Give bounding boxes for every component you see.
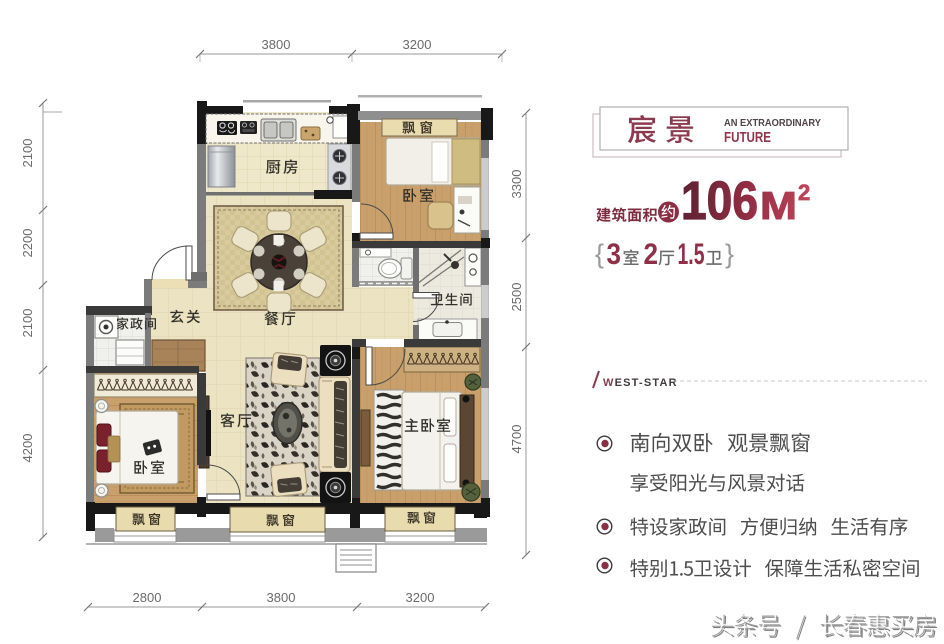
svg-text:AN EXTRAORDINARY: AN EXTRAORDINARY: [724, 117, 821, 129]
svg-text:}: }: [725, 239, 734, 269]
svg-text:3: 3: [607, 238, 622, 271]
svg-text:2100: 2100: [20, 309, 35, 338]
svg-text:M: M: [760, 185, 797, 228]
svg-text:2800: 2800: [133, 590, 162, 605]
svg-text:3200: 3200: [406, 590, 435, 605]
svg-text:106: 106: [681, 171, 758, 231]
svg-text:FUTURE: FUTURE: [724, 130, 771, 146]
svg-text:4200: 4200: [20, 434, 35, 463]
svg-text:3800: 3800: [262, 37, 291, 52]
svg-text:2100: 2100: [20, 139, 35, 168]
svg-text:2: 2: [644, 238, 659, 271]
svg-text:{: {: [595, 239, 604, 269]
svg-text:1.5: 1.5: [678, 238, 705, 271]
svg-text:3800: 3800: [267, 590, 296, 605]
svg-text:2: 2: [798, 180, 810, 205]
svg-text:3300: 3300: [509, 170, 524, 199]
svg-text:2500: 2500: [509, 283, 524, 312]
svg-text:WEST-STAR: WEST-STAR: [603, 377, 678, 389]
svg-text:2200: 2200: [20, 229, 35, 258]
svg-text:4700: 4700: [509, 425, 524, 454]
svg-text:3200: 3200: [403, 37, 432, 52]
